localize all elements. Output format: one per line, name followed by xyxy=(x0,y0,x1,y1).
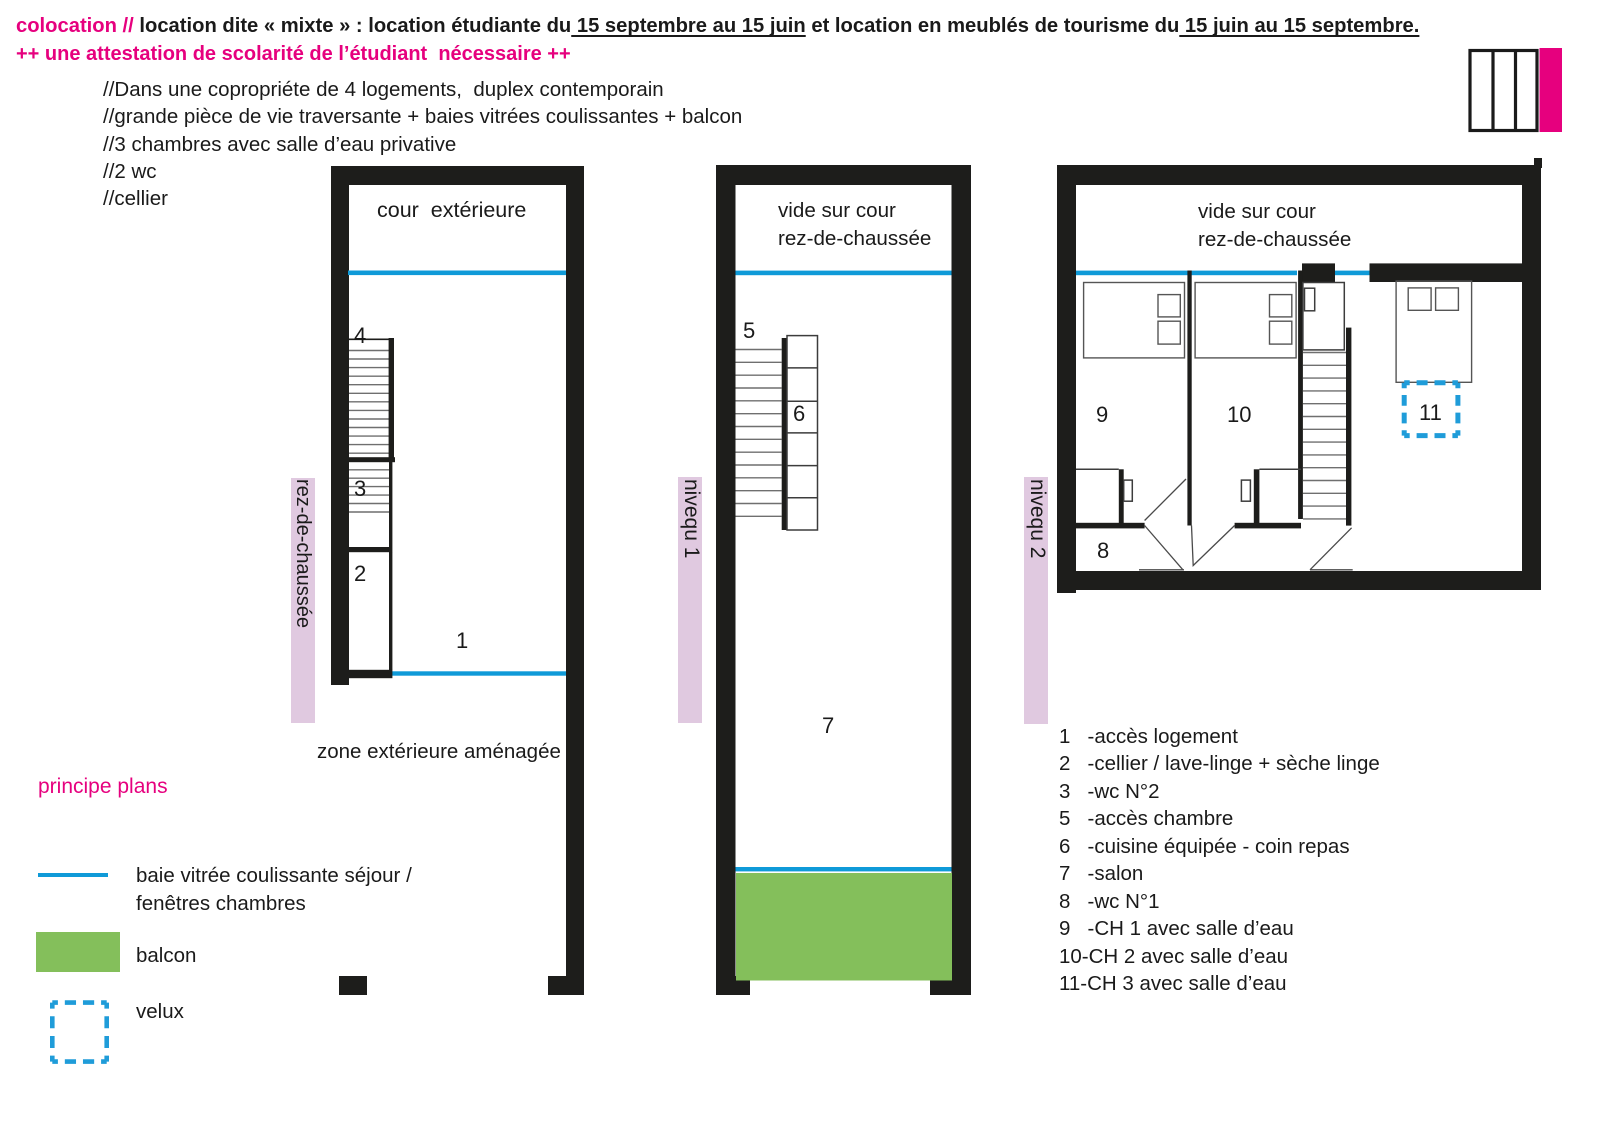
svg-text:rez-de-chaussée: rez-de-chaussée xyxy=(1198,228,1351,251)
svg-text:vide sur cour: vide sur cour xyxy=(1198,200,1316,223)
svg-text:8: 8 xyxy=(1097,538,1109,563)
svg-text:9: 9 xyxy=(1096,402,1108,427)
svg-text:11: 11 xyxy=(1419,400,1442,425)
svg-text:10: 10 xyxy=(1227,402,1251,427)
svg-text:nivequ 2: nivequ 2 xyxy=(1026,479,1049,558)
